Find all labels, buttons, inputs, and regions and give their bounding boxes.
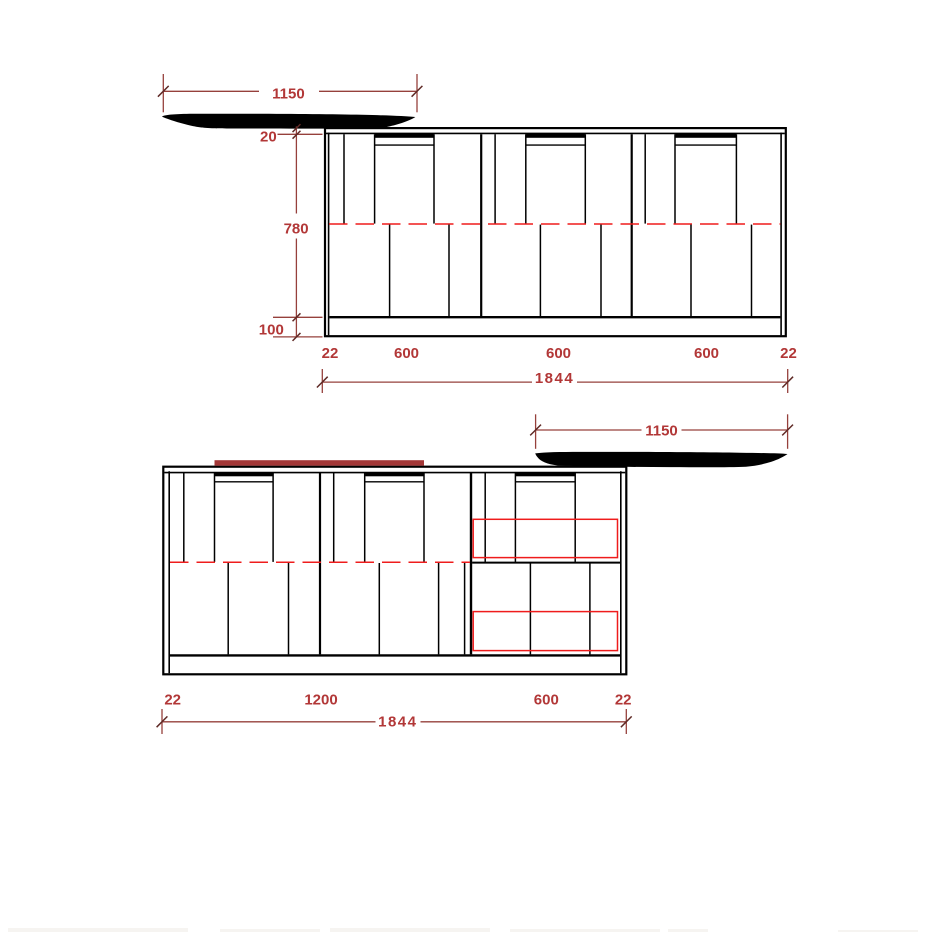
svg-text:600: 600 [546,345,571,362]
svg-text:600: 600 [534,691,559,708]
svg-text:1200: 1200 [304,691,337,708]
svg-text:1844: 1844 [378,714,417,731]
svg-text:22: 22 [615,691,632,708]
svg-text:100: 100 [259,321,284,338]
svg-text:20: 20 [260,129,277,146]
svg-text:22: 22 [780,345,797,362]
svg-text:22: 22 [164,691,181,708]
svg-text:22: 22 [322,345,339,362]
svg-text:1150: 1150 [272,85,305,102]
svg-text:1844: 1844 [535,370,574,387]
svg-text:600: 600 [394,345,419,362]
svg-text:600: 600 [694,345,719,362]
svg-text:1150: 1150 [645,423,678,440]
svg-text:780: 780 [284,220,309,237]
